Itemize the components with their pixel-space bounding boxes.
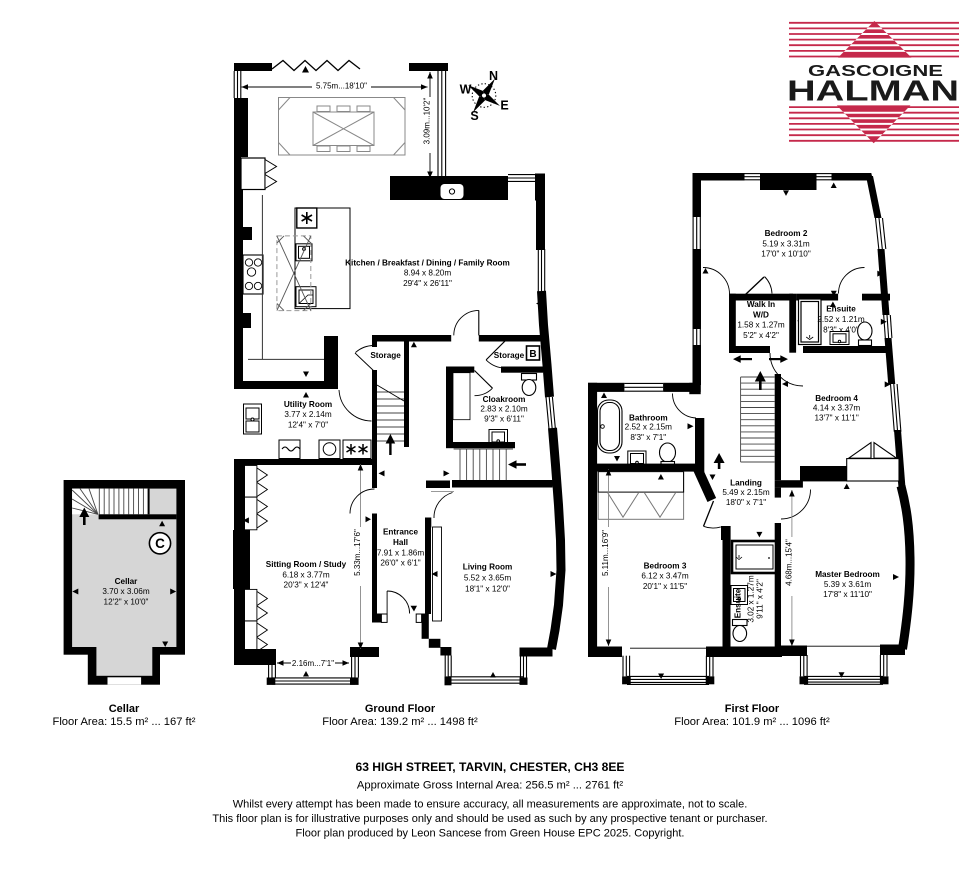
svg-text:Floor Area: 101.9 m² ... 1096: Floor Area: 101.9 m² ... 1096 ft²	[674, 716, 830, 728]
svg-text:3.02 x 1.27m: 3.02 x 1.27m	[747, 575, 756, 623]
svg-text:3.09m...10'2": 3.09m...10'2"	[423, 98, 432, 145]
svg-text:4.68m...15'4": 4.68m...15'4"	[785, 539, 794, 586]
svg-text:Living Room: Living Room	[463, 562, 513, 571]
svg-text:13'7" x 11'1": 13'7" x 11'1"	[814, 414, 858, 423]
svg-text:Floor plan produced by Leon Sa: Floor plan produced by Leon Sancese from…	[296, 827, 685, 839]
svg-text:Storage: Storage	[370, 351, 401, 360]
svg-text:Entrance: Entrance	[383, 528, 418, 537]
svg-text:Whilst every attempt has been: Whilst every attempt has been made to en…	[233, 799, 748, 811]
svg-text:29'4" x 26'11": 29'4" x 26'11"	[403, 279, 452, 288]
svg-text:This floor plan is for illustr: This floor plan is for illustrative purp…	[212, 813, 767, 825]
svg-text:Ensuite: Ensuite	[734, 588, 743, 618]
svg-text:Floor Area: 15.5 m² ... 167 ft: Floor Area: 15.5 m² ... 167 ft²	[52, 716, 195, 728]
svg-text:2.52 x 1.21m: 2.52 x 1.21m	[817, 315, 865, 324]
svg-text:3.70 x 3.06m: 3.70 x 3.06m	[102, 587, 150, 596]
svg-text:2.83 x 2.10m: 2.83 x 2.10m	[480, 404, 528, 413]
svg-text:Landing: Landing	[730, 478, 762, 487]
svg-text:7.91 x 1.86m: 7.91 x 1.86m	[377, 549, 425, 558]
svg-text:Bedroom 4: Bedroom 4	[815, 394, 858, 403]
svg-text:Ensuite: Ensuite	[826, 305, 856, 314]
svg-text:Bedroom 3: Bedroom 3	[644, 561, 687, 570]
svg-text:20'3" x 12'4": 20'3" x 12'4"	[284, 581, 329, 590]
svg-text:18'0" x 7'1": 18'0" x 7'1"	[726, 498, 766, 507]
svg-text:9'3" x 6'11": 9'3" x 6'11"	[484, 414, 524, 423]
svg-text:S: S	[470, 109, 478, 123]
svg-text:C: C	[155, 536, 165, 551]
svg-text:Cellar: Cellar	[109, 703, 140, 715]
svg-text:Storage: Storage	[494, 351, 525, 360]
svg-text:N: N	[489, 69, 498, 83]
svg-text:17'0" x 10'10": 17'0" x 10'10"	[761, 250, 811, 259]
svg-text:B: B	[529, 349, 536, 360]
svg-text:26'0" x 6'1": 26'0" x 6'1"	[380, 559, 420, 568]
svg-text:20'1" x 11'5": 20'1" x 11'5"	[643, 582, 687, 591]
svg-text:9'11" x 4'2": 9'11" x 4'2"	[756, 579, 765, 619]
svg-text:5.39 x 3.61m: 5.39 x 3.61m	[824, 580, 872, 589]
svg-text:2.52 x 2.15m: 2.52 x 2.15m	[625, 423, 673, 432]
svg-text:Ground Floor: Ground Floor	[365, 703, 436, 715]
svg-text:5'2" x 4'2": 5'2" x 4'2"	[743, 331, 779, 340]
svg-text:Bathroom: Bathroom	[629, 413, 668, 422]
svg-text:W/D: W/D	[753, 310, 769, 319]
svg-text:5.33m...17'6": 5.33m...17'6"	[353, 529, 362, 576]
svg-text:8.94 x 8.20m: 8.94 x 8.20m	[404, 269, 452, 278]
svg-text:12'2" x 10'0": 12'2" x 10'0"	[104, 597, 149, 606]
svg-text:5.11m...16'9": 5.11m...16'9"	[601, 530, 610, 576]
svg-text:3.77 x 2.14m: 3.77 x 2.14m	[284, 410, 332, 419]
svg-text:First Floor: First Floor	[725, 703, 780, 715]
svg-text:8'3" x 7'1": 8'3" x 7'1"	[630, 433, 666, 442]
svg-text:Floor Area: 139.2 m² ... 1498: Floor Area: 139.2 m² ... 1498 ft²	[322, 716, 478, 728]
svg-text:6.12 x 3.47m: 6.12 x 3.47m	[641, 572, 689, 581]
svg-text:Hall: Hall	[393, 538, 408, 547]
svg-text:4.14 x 3.37m: 4.14 x 3.37m	[813, 403, 861, 412]
svg-text:E: E	[500, 99, 508, 113]
svg-text:12'4" x 7'0": 12'4" x 7'0"	[288, 420, 328, 429]
svg-text:Walk In: Walk In	[747, 300, 775, 309]
svg-text:Utility Room: Utility Room	[284, 400, 332, 409]
svg-text:HALMAN: HALMAN	[787, 76, 959, 108]
svg-text:Kitchen / Breakfast / Dining /: Kitchen / Breakfast / Dining / Family Ro…	[345, 259, 510, 268]
svg-text:1.58 x 1.27m: 1.58 x 1.27m	[737, 321, 785, 330]
svg-text:17'8" x 11'10": 17'8" x 11'10"	[823, 590, 872, 599]
svg-text:18'1" x 12'0": 18'1" x 12'0"	[465, 584, 510, 593]
svg-text:Bedroom 2: Bedroom 2	[765, 229, 808, 238]
svg-text:Cellar: Cellar	[115, 577, 139, 586]
svg-text:5.49 x 2.15m: 5.49 x 2.15m	[722, 488, 770, 497]
svg-text:Sitting Room / Study: Sitting Room / Study	[266, 560, 347, 569]
svg-text:Master Bedroom: Master Bedroom	[815, 570, 880, 579]
svg-text:6.18 x 3.77m: 6.18 x 3.77m	[282, 570, 330, 579]
svg-text:2.16m...7'1": 2.16m...7'1"	[292, 659, 334, 668]
svg-text:5.19 x 3.31m: 5.19 x 3.31m	[762, 239, 810, 248]
svg-text:Approximate Gross Internal Are: Approximate Gross Internal Area: 256.5 m…	[357, 779, 623, 791]
svg-text:63 HIGH STREET, TARVIN, CHESTE: 63 HIGH STREET, TARVIN, CHESTER, CH3 8EE	[355, 760, 624, 774]
svg-text:5.75m...18'10": 5.75m...18'10"	[316, 82, 367, 91]
svg-text:5.52 x 3.65m: 5.52 x 3.65m	[464, 574, 512, 583]
svg-text:Cloakroom: Cloakroom	[483, 395, 526, 404]
svg-text:W: W	[460, 83, 472, 97]
